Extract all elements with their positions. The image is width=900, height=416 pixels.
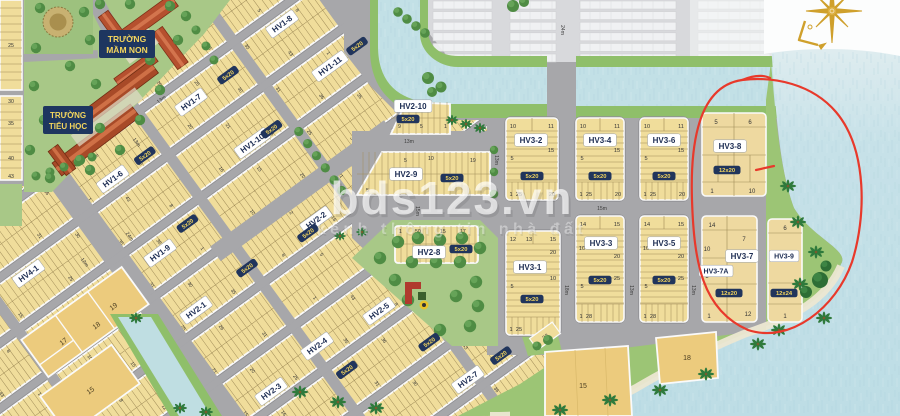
- svg-text:1: 1: [643, 314, 646, 320]
- svg-text:5: 5: [580, 156, 583, 162]
- svg-text:5x20: 5x20: [402, 117, 415, 123]
- svg-text:24m: 24m: [559, 25, 565, 35]
- svg-text:20: 20: [550, 250, 556, 256]
- svg-text:HV2-8: HV2-8: [418, 248, 441, 257]
- svg-text:18: 18: [683, 355, 691, 362]
- svg-text:HV3-1: HV3-1: [519, 263, 542, 272]
- svg-text:13m: 13m: [628, 285, 634, 295]
- svg-text:HV3-6: HV3-6: [653, 136, 676, 145]
- svg-text:5: 5: [420, 124, 423, 130]
- svg-text:25: 25: [586, 192, 592, 198]
- svg-text:28: 28: [650, 314, 656, 320]
- svg-text:15: 15: [548, 148, 554, 154]
- svg-text:10: 10: [510, 124, 516, 130]
- svg-text:10: 10: [580, 124, 586, 130]
- svg-text:1: 1: [579, 314, 582, 320]
- svg-text:10: 10: [550, 276, 556, 282]
- svg-text:10: 10: [428, 156, 434, 162]
- svg-text:HV3-5: HV3-5: [653, 239, 676, 248]
- svg-text:25: 25: [650, 192, 656, 198]
- svg-text:15: 15: [579, 383, 587, 390]
- svg-text:14: 14: [709, 223, 716, 229]
- svg-text:1: 1: [643, 192, 646, 198]
- svg-text:5: 5: [510, 156, 513, 162]
- svg-text:25: 25: [8, 43, 14, 49]
- svg-text:28: 28: [586, 314, 592, 320]
- svg-text:5x20: 5x20: [658, 174, 671, 180]
- svg-text:12x24: 12x24: [776, 291, 793, 297]
- svg-text:20: 20: [615, 192, 621, 198]
- svg-text:bds123.vn: bds123.vn: [331, 172, 574, 224]
- svg-text:25: 25: [516, 327, 522, 333]
- svg-text:TRƯỜNG: TRƯỜNG: [50, 111, 86, 120]
- svg-text:13m: 13m: [493, 155, 499, 165]
- svg-text:15: 15: [614, 222, 620, 228]
- svg-text:kênh thông tin nhà đất: kênh thông tin nhà đất: [317, 221, 588, 238]
- svg-text:19: 19: [470, 158, 476, 164]
- svg-text:20: 20: [679, 192, 685, 198]
- svg-text:HV2-10: HV2-10: [399, 102, 427, 111]
- svg-text:15: 15: [614, 148, 620, 154]
- svg-text:11: 11: [678, 124, 684, 130]
- svg-text:10: 10: [579, 246, 585, 252]
- svg-text:HV3-4: HV3-4: [589, 136, 612, 145]
- svg-text:25: 25: [614, 276, 620, 282]
- svg-text:18m: 18m: [563, 285, 569, 295]
- svg-text:5x20: 5x20: [594, 278, 607, 284]
- svg-text:5: 5: [580, 284, 583, 290]
- svg-text:20: 20: [614, 254, 620, 260]
- svg-text:9: 9: [398, 124, 401, 130]
- svg-text:11: 11: [614, 124, 620, 130]
- svg-text:13m: 13m: [404, 139, 414, 145]
- svg-text:25: 25: [678, 276, 684, 282]
- svg-text:35: 35: [8, 121, 14, 127]
- svg-text:HV3-2: HV3-2: [520, 136, 543, 145]
- svg-text:HV3-7A: HV3-7A: [704, 269, 729, 276]
- svg-text:5x20: 5x20: [658, 278, 671, 284]
- svg-text:20: 20: [678, 254, 684, 260]
- svg-text:12x20: 12x20: [719, 168, 735, 174]
- svg-text:10: 10: [644, 124, 650, 130]
- svg-text:43: 43: [8, 174, 14, 180]
- svg-text:11: 11: [548, 124, 554, 130]
- svg-text:15: 15: [678, 148, 684, 154]
- svg-text:14: 14: [644, 222, 650, 228]
- svg-text:5x20: 5x20: [455, 247, 468, 253]
- svg-text:5: 5: [644, 156, 647, 162]
- svg-text:5: 5: [404, 158, 407, 164]
- svg-text:15: 15: [678, 222, 684, 228]
- svg-text:1: 1: [579, 192, 582, 198]
- svg-text:12x20: 12x20: [721, 291, 737, 297]
- svg-text:15m: 15m: [597, 206, 607, 212]
- svg-text:40: 40: [8, 156, 14, 162]
- svg-text:TRƯỜNG: TRƯỜNG: [108, 33, 147, 44]
- svg-text:5x20: 5x20: [526, 297, 539, 303]
- svg-text:10: 10: [749, 189, 756, 195]
- svg-text:1: 1: [509, 327, 512, 333]
- svg-text:HV3-3: HV3-3: [590, 239, 613, 248]
- svg-text:10: 10: [704, 247, 711, 253]
- svg-text:5: 5: [510, 284, 513, 290]
- svg-text:5x20: 5x20: [594, 174, 607, 180]
- svg-text:MẦM NON: MẦM NON: [106, 45, 148, 55]
- svg-text:TIỂU HỌC: TIỂU HỌC: [49, 122, 87, 131]
- svg-text:30: 30: [8, 99, 14, 105]
- svg-text:13m: 13m: [690, 285, 696, 295]
- svg-text:5: 5: [644, 284, 647, 290]
- svg-text:HV3-8: HV3-8: [719, 142, 742, 151]
- svg-text:HV3-7: HV3-7: [731, 252, 754, 261]
- svg-text:HV3-9: HV3-9: [774, 254, 794, 261]
- svg-text:12: 12: [745, 312, 752, 318]
- svg-text:1: 1: [444, 124, 447, 130]
